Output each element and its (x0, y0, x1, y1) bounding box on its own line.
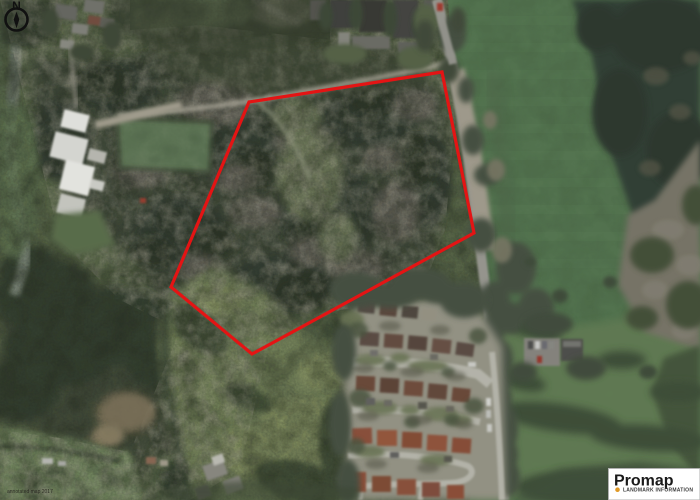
svg-text:N: N (12, 0, 21, 13)
svg-text:LANDMARK INFORMATION: LANDMARK INFORMATION (623, 488, 693, 494)
svg-text:annotated map 2017: annotated map 2017 (7, 489, 53, 495)
